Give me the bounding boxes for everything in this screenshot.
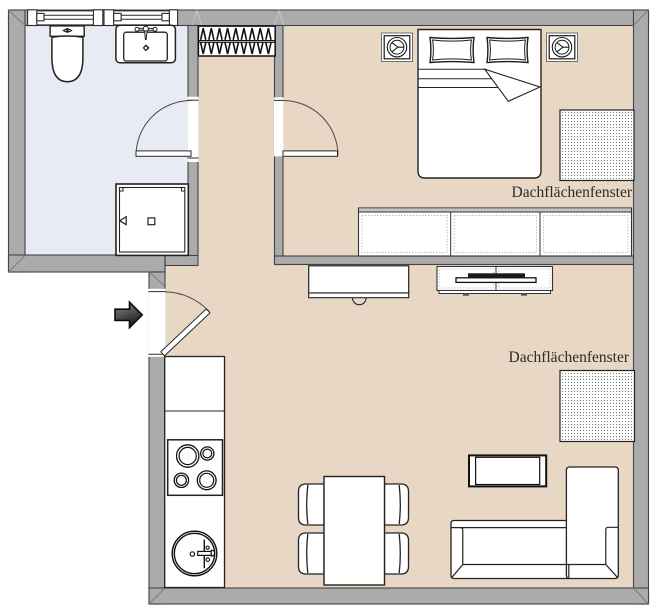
svg-text:Dachflächenfenster: Dachflächenfenster xyxy=(512,184,633,201)
svg-text:Dachflächenfenster: Dachflächenfenster xyxy=(509,349,630,366)
